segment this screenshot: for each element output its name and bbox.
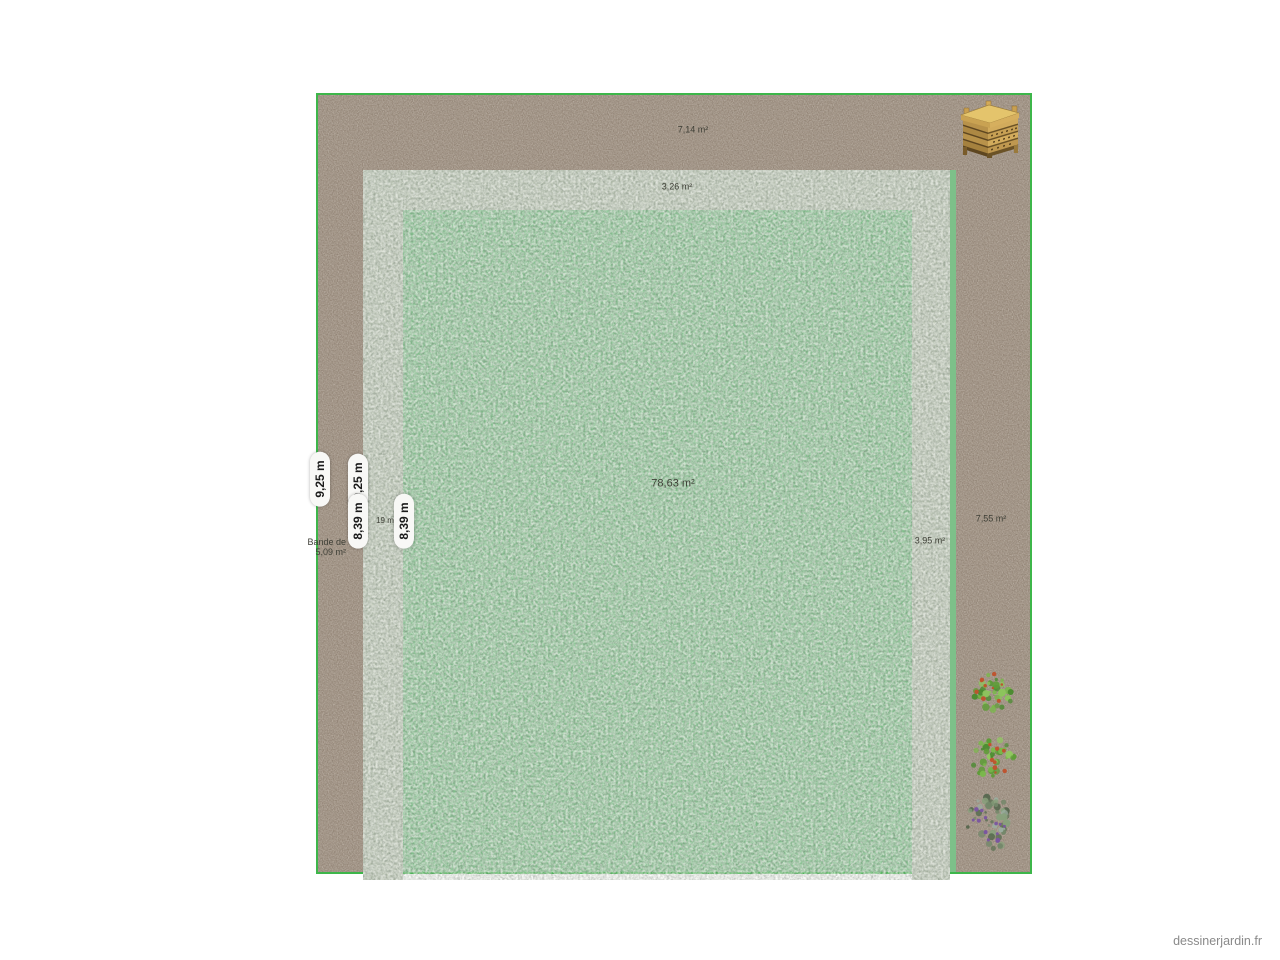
gravel-left-area-label: 19 m [376,517,394,525]
lawn-area-label: 78,63 m² [651,479,694,490]
garden-plan-page: 7,14 m² 3,26 m² 78,63 m² 7,55 m² 3,95 m²… [0,0,1280,960]
watermark: dessinerjardin.fr [1173,934,1262,948]
composter-image [957,97,1023,159]
plant-image [968,734,1018,784]
lawn-zone[interactable] [403,170,956,874]
dimension-pill-8-39-left: 8,39 m [348,493,368,548]
dimension-pill-8-39-right: 8,39 m [394,493,414,548]
strip-label-line2: 5,09 m² [299,547,346,557]
strip-label-line1: Bande de [299,537,346,547]
plant-image [968,666,1018,716]
plant-image [962,790,1018,856]
composter-object[interactable] [957,97,1023,164]
gravel-top-area-label: 3,26 m² [662,183,693,192]
gravel-right-area-label: 3,95 m² [915,537,946,546]
plant-red-flowers-2[interactable] [968,734,1018,789]
dimension-pill-9-25-outer: 9,25 m [310,451,330,506]
strip-label: Bande de 5,09 m² [299,537,346,557]
soil-top-area-label: 7,14 m² [678,126,709,135]
soil-right-area-label: 7,55 m² [976,515,1007,524]
plant-purple-flowers[interactable] [962,790,1018,861]
plant-red-flowers-1[interactable] [968,666,1018,721]
